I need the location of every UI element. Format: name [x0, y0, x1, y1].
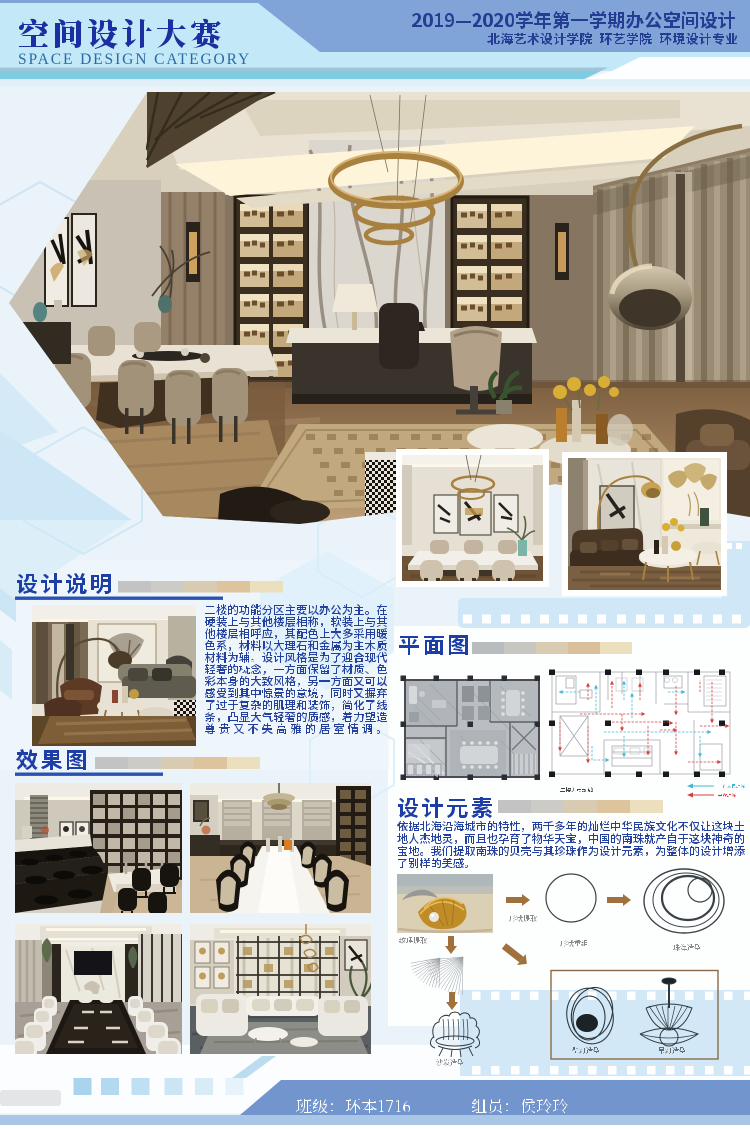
svg-text:SPACE DESIGN CATEGORY: SPACE DESIGN CATEGORY: [18, 51, 251, 68]
